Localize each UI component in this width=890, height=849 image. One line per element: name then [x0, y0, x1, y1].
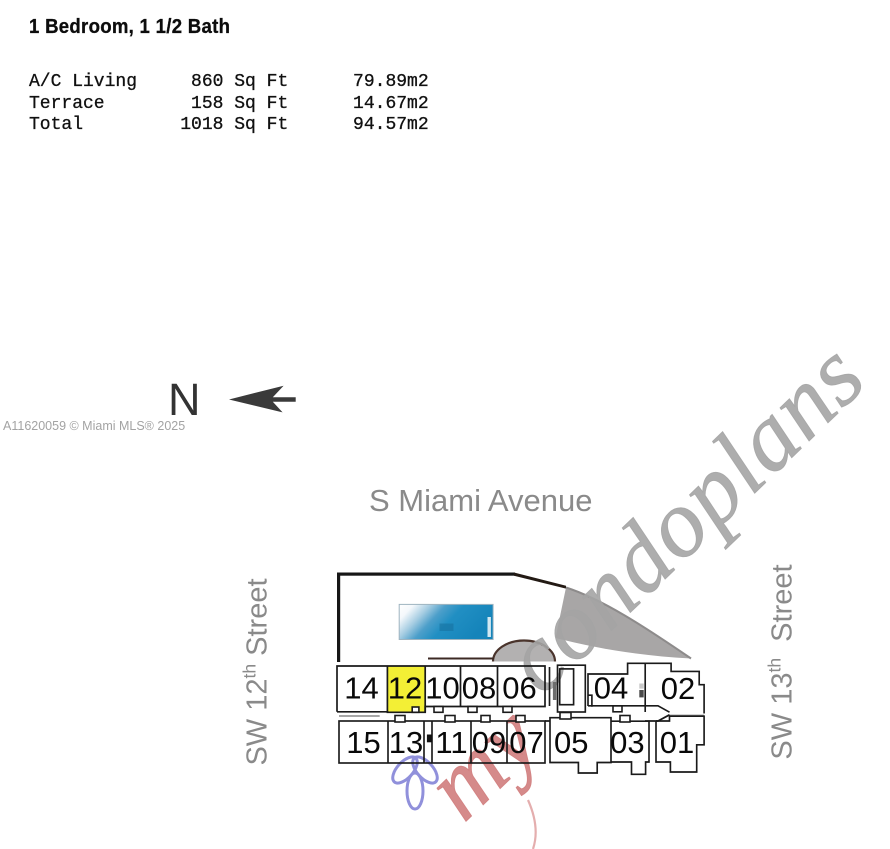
svg-text:15: 15 — [346, 725, 380, 760]
svg-text:04: 04 — [594, 671, 628, 706]
svg-text:05: 05 — [554, 725, 588, 760]
svg-text:07: 07 — [509, 725, 543, 760]
svg-text:11: 11 — [435, 725, 467, 760]
svg-text:06: 06 — [502, 671, 536, 706]
svg-text:08: 08 — [462, 671, 496, 706]
svg-text:01: 01 — [660, 725, 694, 760]
svg-text:13: 13 — [389, 725, 423, 760]
svg-text:03: 03 — [610, 725, 644, 760]
svg-text:10: 10 — [425, 671, 459, 706]
svg-text:12: 12 — [388, 671, 422, 706]
svg-text:09: 09 — [472, 725, 506, 760]
svg-text:02: 02 — [661, 671, 695, 706]
svg-text:14: 14 — [344, 671, 378, 706]
